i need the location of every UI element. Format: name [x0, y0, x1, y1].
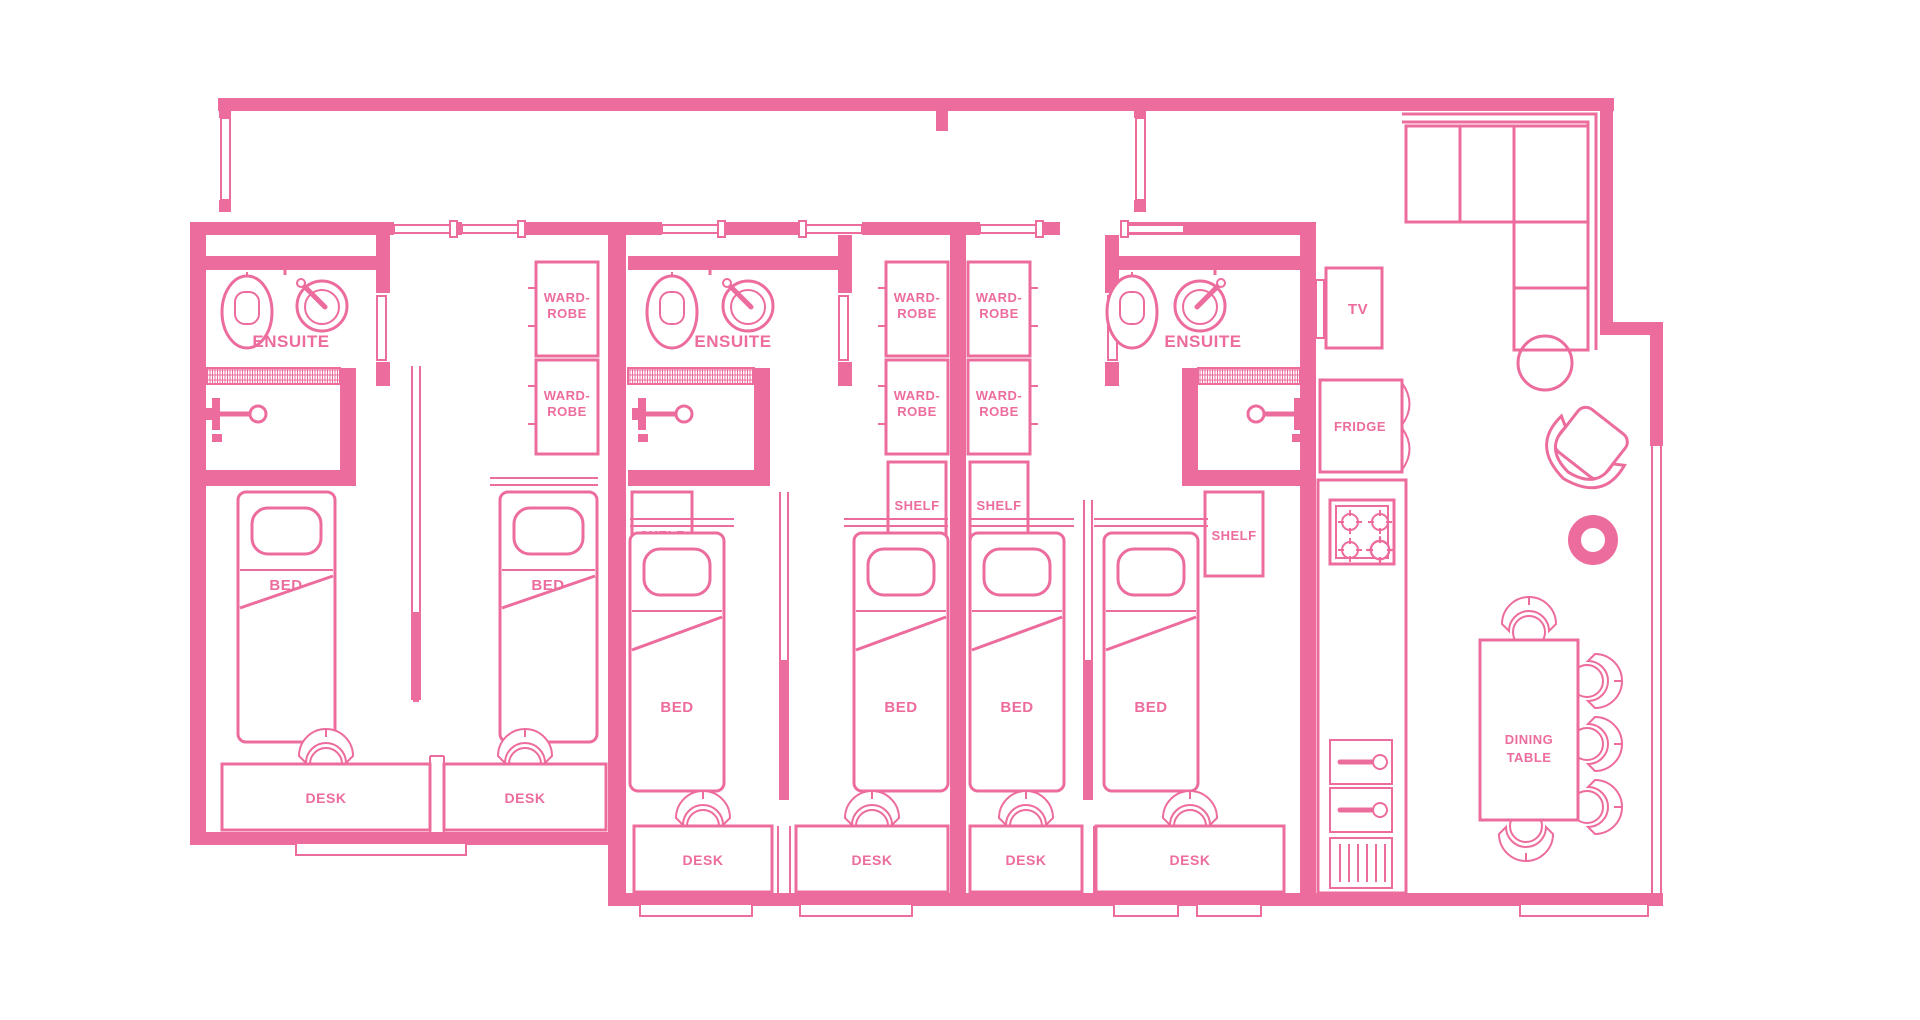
- desk-label: DESK: [852, 852, 893, 868]
- desk-label: DESK: [306, 790, 347, 806]
- beds: BED BED BED BED: [228, 478, 1208, 791]
- bed-label: BED: [660, 699, 693, 716]
- right-window-wall: [1652, 446, 1661, 893]
- tv-unit: TV: [1316, 268, 1382, 348]
- wardrobe-label: ROBE: [547, 306, 587, 321]
- floor-plan-drawing: ENSUITE ENSUITE ENSUITE: [0, 0, 1920, 1020]
- wardrobe-label: WARD-: [544, 388, 591, 403]
- floor-cushion-icon: [1568, 515, 1618, 565]
- ensuite-label: ENSUITE: [252, 332, 329, 351]
- ensuite-label: ENSUITE: [694, 332, 771, 351]
- tap-icon: [276, 266, 294, 275]
- wardrobe-label: WARD-: [544, 290, 591, 305]
- bed: BED: [630, 519, 734, 791]
- dining-table: [1480, 640, 1578, 820]
- sliding-door-icon: [980, 221, 1043, 237]
- shelf-label: SHELF: [1211, 528, 1256, 543]
- corner-sofa-icon: [1402, 114, 1596, 350]
- entrance-door: [219, 108, 231, 212]
- bed: BED: [228, 478, 345, 742]
- fridge: FRIDGE: [1320, 380, 1410, 472]
- toilet-icon: [647, 272, 697, 348]
- bed-label: BED: [269, 577, 302, 594]
- bed: BED: [970, 519, 1074, 791]
- shower-screen-icon: [1198, 368, 1300, 384]
- sink-icon: [297, 279, 347, 331]
- ensuite-1: ENSUITE: [190, 235, 390, 486]
- desk-label: DESK: [683, 852, 724, 868]
- bed: BED: [844, 519, 948, 791]
- kitchen-corridor-door: [1134, 108, 1146, 212]
- dining-table-label: TABLE: [1507, 750, 1552, 765]
- bed-label: BED: [531, 577, 564, 594]
- kitchen: TV FRIDGE: [1316, 268, 1410, 893]
- bed-label: BED: [1134, 699, 1167, 716]
- shelf-label: SHELF: [976, 498, 1021, 513]
- tap-icon: [701, 266, 719, 275]
- ensuite-label: ENSUITE: [1164, 332, 1241, 351]
- ensuite-door-icon: [377, 296, 386, 360]
- ensuite-3: ENSUITE: [1105, 235, 1308, 486]
- wardrobe-label: ROBE: [979, 306, 1019, 321]
- ensuite-2: ENSUITE: [628, 235, 852, 486]
- armchair-icon: [1531, 397, 1639, 504]
- corridor-wall: [190, 111, 1316, 235]
- wardrobe-label: WARD-: [894, 290, 941, 305]
- desk-label: DESK: [1170, 852, 1211, 868]
- desk-label: DESK: [505, 790, 546, 806]
- desk-label: DESK: [1006, 852, 1047, 868]
- sliding-door-icon: [662, 221, 725, 237]
- sliding-door-icon: [394, 221, 457, 237]
- sliding-door-icon: [462, 221, 525, 237]
- fridge-label: FRIDGE: [1334, 419, 1386, 434]
- bed: BED: [1094, 519, 1208, 791]
- bed-label: BED: [884, 699, 917, 716]
- shower-icon: [206, 398, 266, 442]
- bed: BED: [490, 478, 598, 742]
- hob-icon: [1330, 500, 1394, 564]
- tv-label: TV: [1348, 301, 1368, 318]
- tap-icon: [1206, 266, 1224, 275]
- dining-set: DINING TABLE: [1480, 597, 1622, 861]
- sink-icon: [723, 279, 773, 331]
- shower-icon: [632, 398, 692, 442]
- floor-plan-page: ENSUITE ENSUITE ENSUITE: [0, 0, 1920, 1020]
- wardrobe-label: ROBE: [897, 306, 937, 321]
- drainer-icon: [1330, 838, 1392, 888]
- wardrobe-label: WARD-: [976, 388, 1023, 403]
- shower-screen-icon: [628, 368, 754, 384]
- wardrobe-label: ROBE: [897, 404, 937, 419]
- wardrobe-label: WARD-: [894, 388, 941, 403]
- ensuite-door-icon: [839, 296, 848, 360]
- wardrobe-label: ROBE: [547, 404, 587, 419]
- dining-table-label: DINING: [1505, 732, 1554, 747]
- bed-label: BED: [1000, 699, 1033, 716]
- wardrobe-label: ROBE: [979, 404, 1019, 419]
- wardrobe-label: WARD-: [976, 290, 1023, 305]
- shower-screen-icon: [206, 368, 340, 384]
- shelf-label: SHELF: [894, 498, 939, 513]
